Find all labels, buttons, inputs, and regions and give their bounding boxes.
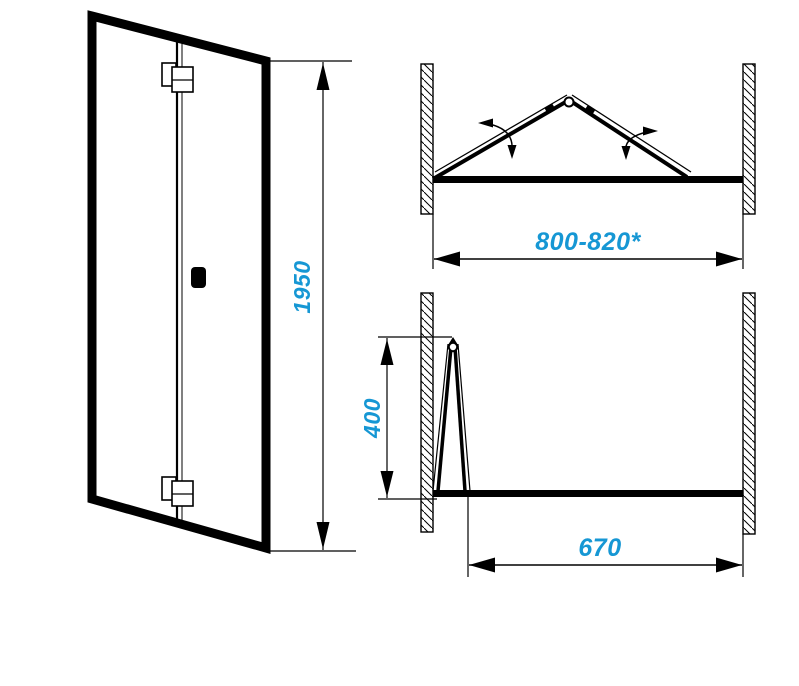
width-dimension: 800-820* — [433, 214, 743, 269]
clear-arrow-left-icon — [469, 558, 495, 573]
threshold-bar-folded — [433, 490, 743, 497]
wall-section-left-folded — [421, 293, 433, 532]
width-dimension-label: 800-820* — [535, 228, 641, 256]
top-view-folded: 400 670 — [359, 293, 755, 577]
width-arrow-right-icon — [716, 252, 742, 267]
clear-width-dimension: 670 — [468, 497, 743, 577]
swing-arrow-left — [478, 119, 517, 160]
folded-pivot-hinge-icon — [449, 343, 457, 351]
depth-dimension-label: 400 — [359, 398, 385, 439]
pivot-hinge-icon — [565, 98, 574, 107]
door-handle — [191, 267, 206, 288]
front-view: 1950 — [92, 16, 356, 551]
swing-arrow-right-head-icon — [643, 127, 658, 136]
swing-arrow-right-down-head-icon — [622, 146, 631, 160]
height-dimension: 1950 — [269, 61, 356, 551]
height-arrow-down-icon — [317, 522, 330, 549]
open-door-panels — [433, 95, 691, 179]
folded-door-panels — [433, 338, 470, 491]
depth-arrow-down-icon — [381, 471, 394, 497]
top-view-open: 800-820* — [421, 64, 755, 269]
door-frame — [92, 16, 266, 548]
wall-section-left — [421, 64, 433, 214]
depth-arrow-up-icon — [381, 339, 394, 365]
technical-drawing: 1950 — [0, 0, 799, 686]
height-arrow-up-icon — [317, 63, 330, 90]
drawing-canvas: 1950 — [0, 0, 799, 686]
door-panels-chevron — [433, 100, 687, 179]
threshold-bar — [433, 176, 743, 183]
swing-arrow-left-head-icon — [478, 119, 493, 128]
clear-width-dimension-label: 670 — [578, 534, 621, 562]
wall-section-right-folded — [743, 293, 755, 534]
wall-section-right — [743, 64, 755, 214]
width-arrow-left-icon — [434, 252, 460, 267]
swing-arrow-left-down-head-icon — [508, 145, 517, 159]
left-panel-edge-line — [435, 95, 567, 172]
clear-arrow-right-icon — [716, 558, 742, 573]
height-dimension-label: 1950 — [289, 260, 315, 313]
